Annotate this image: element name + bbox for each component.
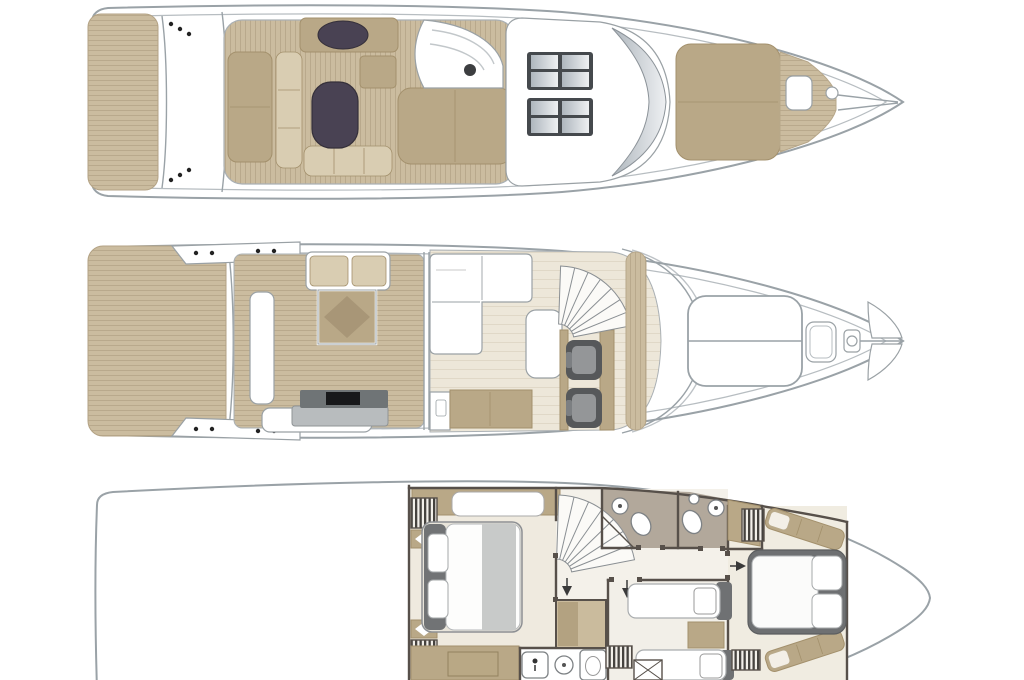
wetbar-sink <box>318 21 368 49</box>
foredeck-hatch <box>786 76 812 110</box>
swim-platform <box>88 246 226 436</box>
dinette-table <box>526 310 562 378</box>
helm-console-side <box>600 330 614 430</box>
pillow <box>812 594 842 628</box>
shower-box <box>634 660 662 680</box>
lower-deck-plan <box>96 481 931 680</box>
pillow <box>812 556 842 590</box>
flybridge-dining-table <box>312 82 358 148</box>
transom-bench <box>250 292 274 404</box>
flybridge-settee-aft <box>304 146 392 176</box>
cockpit-tv-cabinet <box>292 390 388 426</box>
yacht-floorplan-page <box>0 0 1024 680</box>
anchor-windlass <box>826 87 838 99</box>
helm-dashboard <box>626 252 646 430</box>
steering-wheel-icon <box>464 64 476 76</box>
hanging-locker <box>742 509 764 541</box>
flybridge-settee-side <box>276 52 302 168</box>
pillow <box>428 534 448 572</box>
flybridge-side-unit <box>360 56 396 88</box>
helm-seat-1 <box>566 340 602 380</box>
cockpit-settee <box>306 252 390 290</box>
flybridge-deck-plan <box>88 5 903 199</box>
swim-platform <box>88 14 158 190</box>
master-double-bed <box>422 522 522 632</box>
pillow <box>700 654 722 678</box>
pillow <box>428 580 448 618</box>
bow-hatch <box>806 322 836 362</box>
yacht-floorplan-diagram <box>0 0 1024 680</box>
vip-double-bed <box>748 550 846 634</box>
hanging-locker <box>732 650 760 670</box>
pillow <box>694 588 716 614</box>
cockpit-table <box>318 290 376 344</box>
galley-counter <box>430 390 532 430</box>
nightstand <box>688 622 724 648</box>
main-deck-plan <box>88 242 903 440</box>
helm-seat-2 <box>566 388 602 428</box>
corridor-cabinet <box>556 600 606 648</box>
hanging-locker <box>606 646 632 668</box>
single-bed <box>628 582 732 620</box>
master-ensuite <box>520 648 608 680</box>
